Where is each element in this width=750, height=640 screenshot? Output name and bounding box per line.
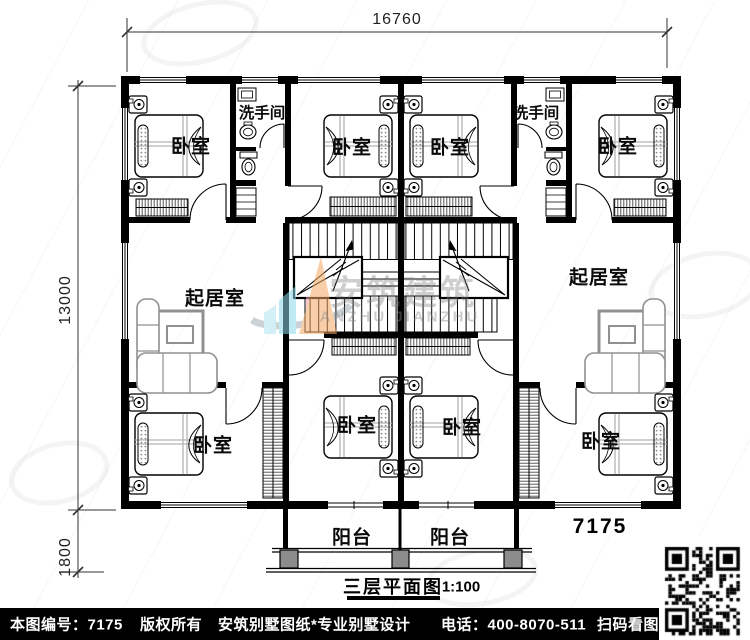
room-label-bathroom-right: 洗手间: [513, 101, 560, 123]
footer-drawing-no: 本图编号：7175: [10, 614, 123, 635]
title-underline: [347, 596, 440, 600]
footer-copyright: 版权所有: [140, 614, 202, 635]
room-label-bedroom-bottom-left: 卧室: [193, 431, 233, 458]
room-label-bedroom-bottom-right: 卧室: [581, 427, 621, 454]
room-label-living-left: 起居室: [185, 284, 245, 311]
room-label-bathroom-left: 洗手间: [239, 101, 286, 123]
footer-bar: 本图编号：7175 版权所有 安筑别墅图纸*专业别墅设计 电话：400-8070…: [0, 608, 750, 640]
room-label-balcony-left: 阳台: [332, 523, 372, 550]
dimension-width: 16760: [372, 11, 422, 29]
dimension-height-balcony: 1800: [57, 537, 75, 577]
watermark-cn: 安筑建筑: [329, 266, 477, 315]
room-label-bedroom-bottom-mid-right: 卧室: [442, 413, 482, 440]
plan-number: 7175: [573, 515, 628, 539]
footer-company: 安筑别墅图纸*专业别墅设计: [218, 614, 410, 635]
watermark-en: ANZHU JIANZHU: [320, 309, 481, 326]
room-label-living-right: 起居室: [569, 263, 629, 290]
balcony-railing: [266, 509, 536, 572]
floor-plan-page: 16760 13000 1800 卧室 洗手间 卧室 卧室 洗手间 卧室 起居室…: [0, 0, 750, 640]
footer-scan-hint: 扫码看图: [597, 614, 659, 635]
room-label-bedroom-bottom-mid-left: 卧室: [337, 411, 377, 438]
plan-scale: 1:100: [442, 579, 480, 596]
room-label-bedroom-top-mid-left: 卧室: [332, 133, 372, 160]
room-label-bedroom-top-mid-right: 卧室: [430, 133, 470, 160]
room-label-bedroom-top-left: 卧室: [171, 132, 211, 159]
dimension-height-main: 13000: [57, 275, 75, 325]
room-label-bedroom-top-right: 卧室: [598, 132, 638, 159]
qr-code: [659, 536, 750, 640]
footer-phone: 电话：400-8070-511: [441, 614, 586, 635]
room-label-balcony-right: 阳台: [430, 523, 470, 550]
